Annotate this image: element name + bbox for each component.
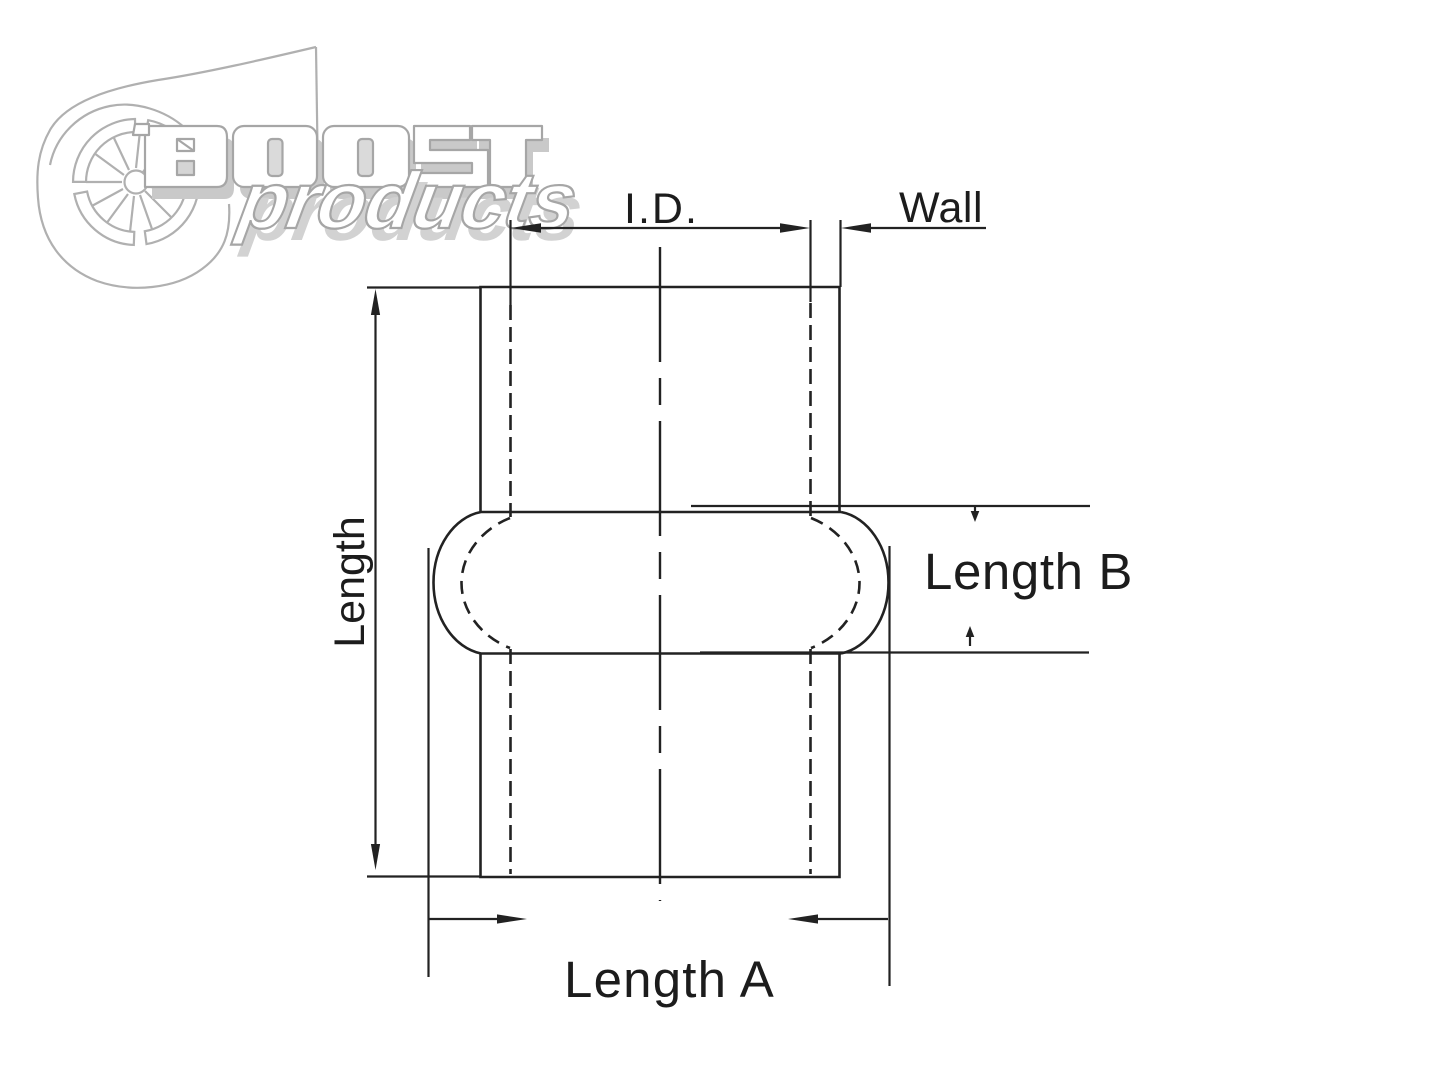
svg-text:Length: Length bbox=[326, 516, 374, 648]
svg-text:Length A: Length A bbox=[564, 951, 775, 1008]
svg-text:I.D.: I.D. bbox=[624, 185, 699, 233]
svg-text:Length B: Length B bbox=[924, 543, 1133, 600]
svg-text:products: products bbox=[231, 157, 583, 246]
svg-text:Wall: Wall bbox=[899, 184, 983, 232]
